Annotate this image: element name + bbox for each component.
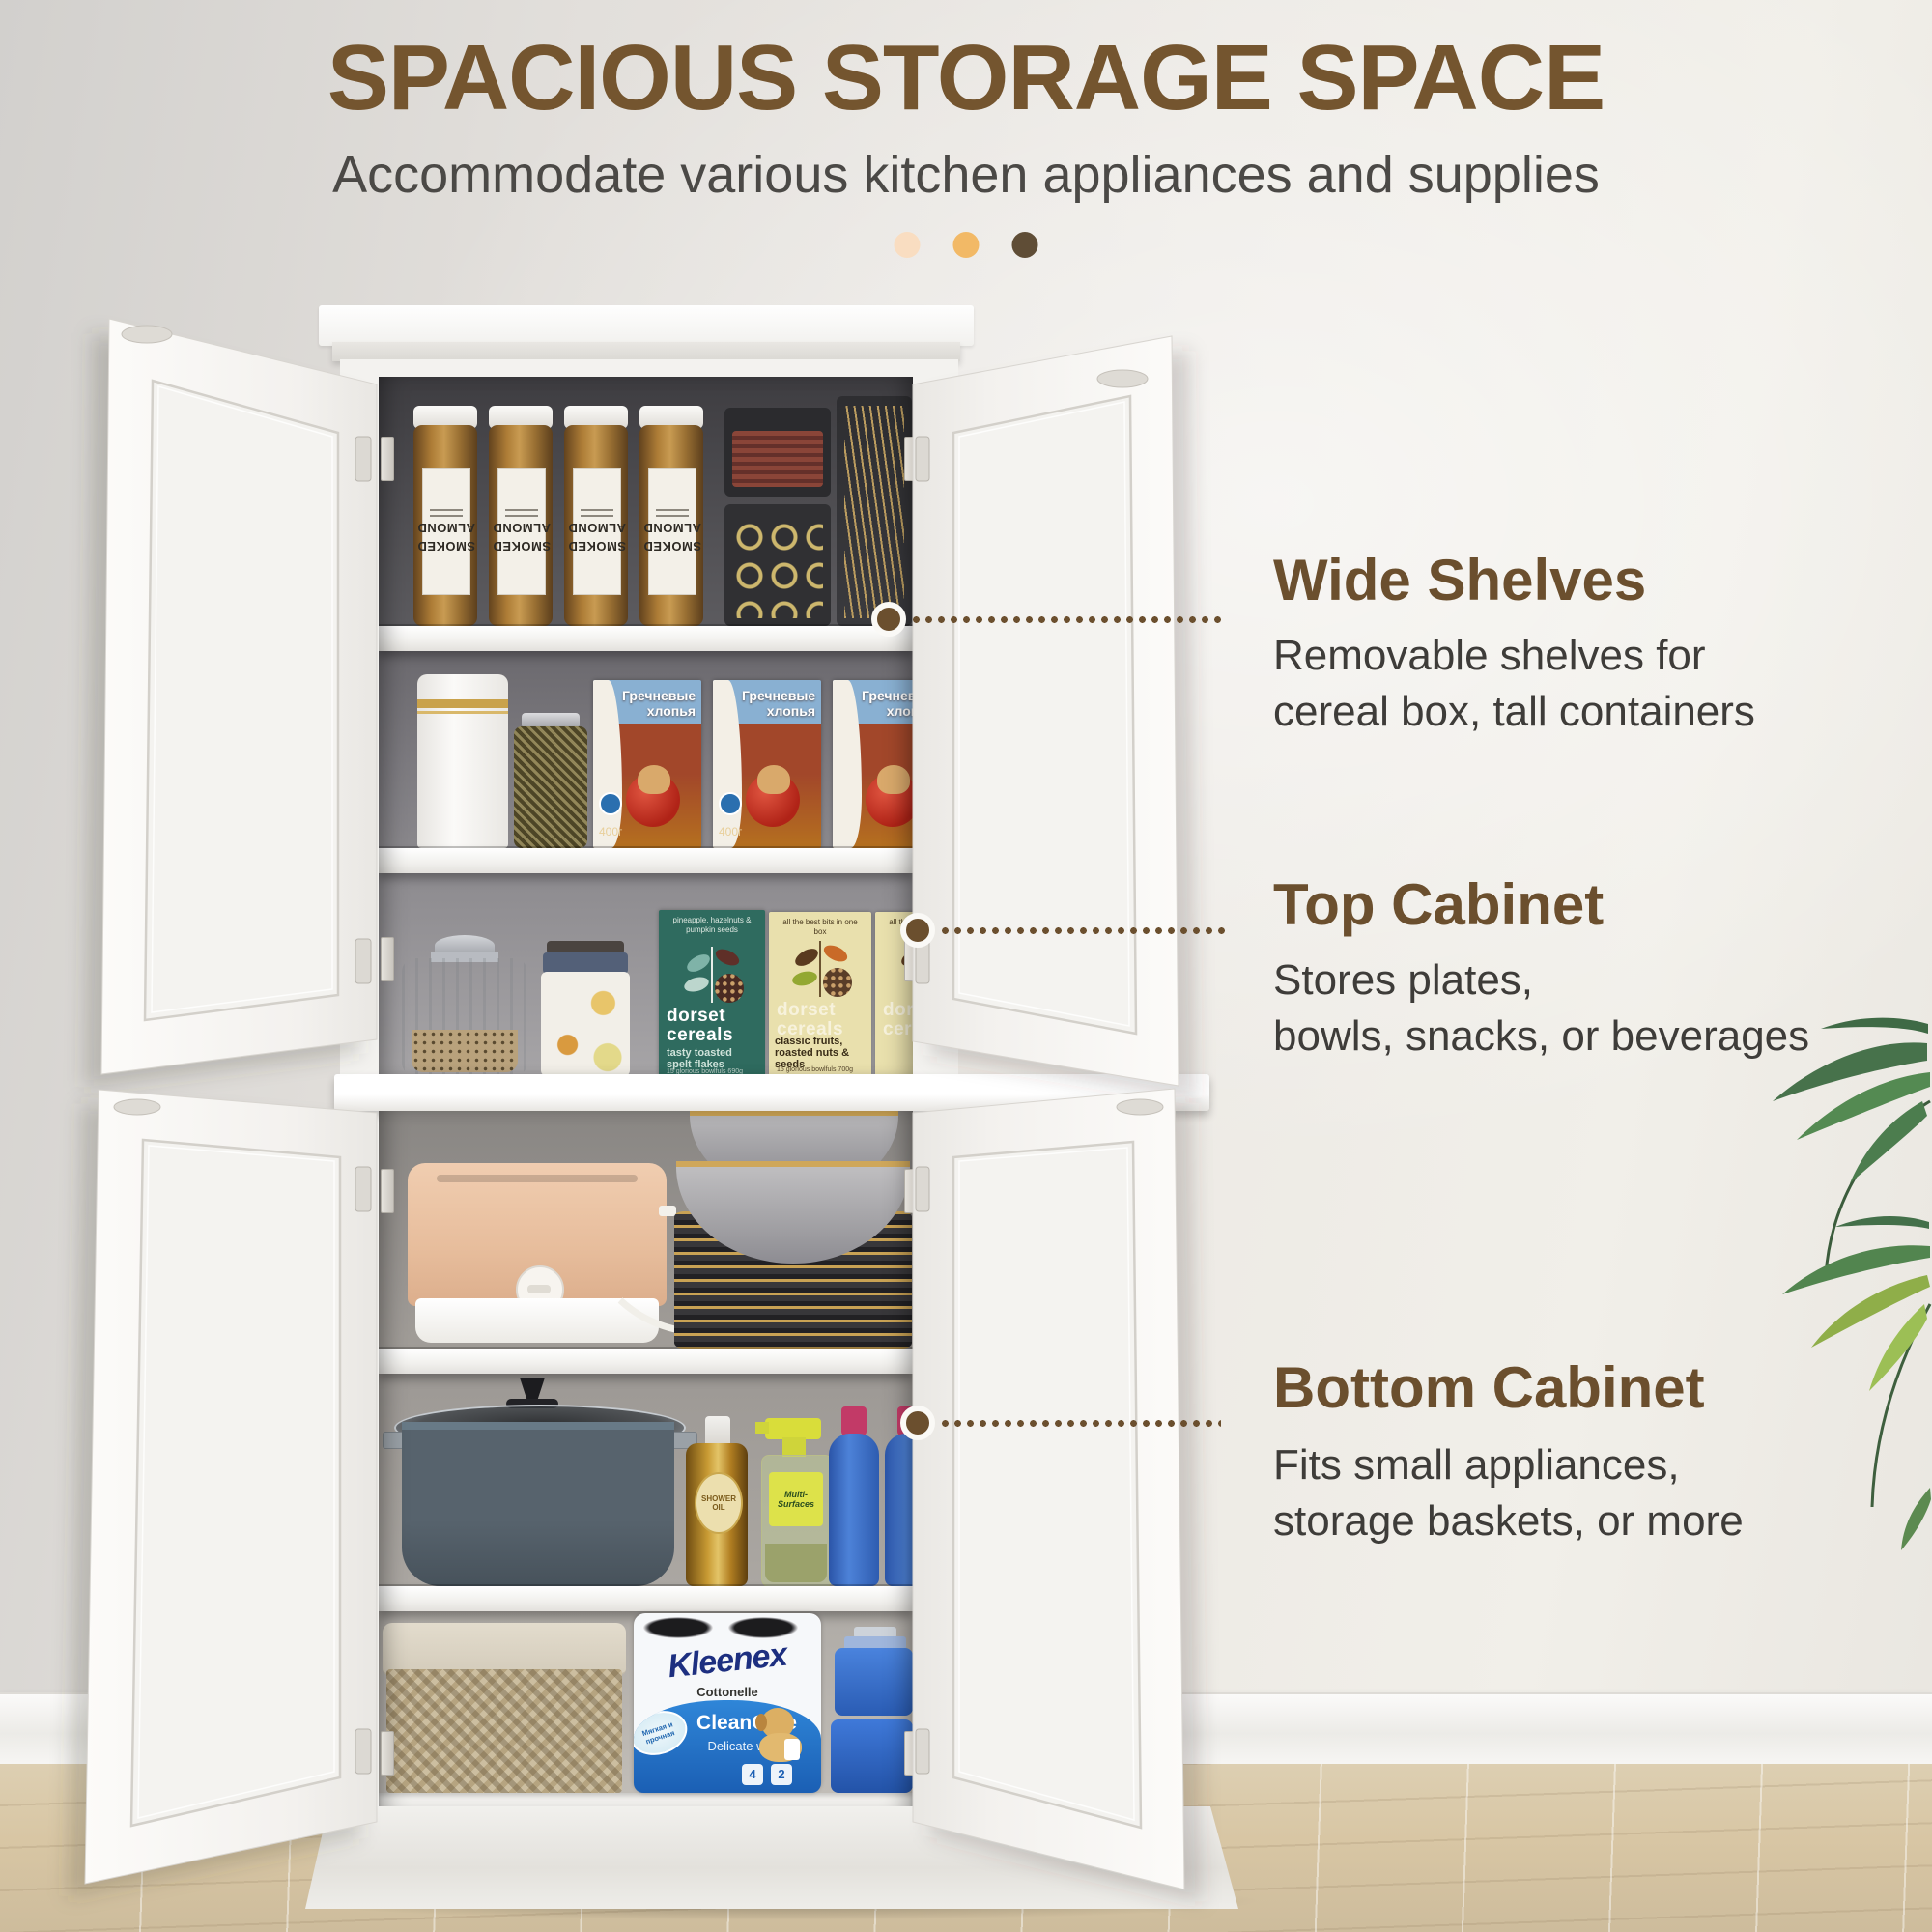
door-catch-plate xyxy=(122,326,172,343)
pagination-dot-3 xyxy=(1012,232,1038,258)
leader-dotted-line xyxy=(941,1419,1221,1428)
door-hinge-plate xyxy=(916,1167,929,1211)
page-subtitle: Accommodate various kitchen appliances a… xyxy=(0,145,1932,205)
callout-title: Wide Shelves xyxy=(1273,547,1646,613)
door-bottom-right[interactable] xyxy=(913,1089,1184,1889)
palm-leaf xyxy=(1901,1488,1931,1550)
door-hinge-plate xyxy=(355,1167,371,1211)
callout-text-line: cereal box, tall containers xyxy=(1273,688,1755,736)
door-top-left[interactable] xyxy=(101,319,377,1074)
palm-leaf xyxy=(1850,1101,1927,1183)
palm-leaf xyxy=(1821,1018,1928,1034)
page-title: SPACIOUS STORAGE SPACE xyxy=(0,25,1932,131)
pagination-dot-1 xyxy=(895,232,921,258)
palm-leaf xyxy=(1835,1216,1929,1229)
pagination-dot-2 xyxy=(953,232,980,258)
door-top-right[interactable] xyxy=(913,336,1179,1086)
door-hinge-plate xyxy=(916,1729,929,1774)
callout-text-line: Stores plates, xyxy=(1273,956,1533,1005)
door-panel xyxy=(953,396,1136,1034)
callout-text-line: Removable shelves for xyxy=(1273,632,1706,680)
cabinet-doors xyxy=(0,0,1932,1932)
door-panel xyxy=(145,381,338,1020)
door-catch-plate xyxy=(114,1099,160,1115)
door-hinge-plate xyxy=(355,939,371,983)
door-catch-plate xyxy=(1117,1099,1163,1115)
door-hinge-plate xyxy=(355,1729,371,1774)
door-bottom-left[interactable] xyxy=(85,1090,377,1884)
door-hinge-plate xyxy=(355,437,371,481)
door-catch-plate xyxy=(1097,370,1148,387)
callout-text-line: storage baskets, or more xyxy=(1273,1497,1744,1546)
leader-dotted-line xyxy=(941,926,1231,935)
leader-anchor-dot xyxy=(900,913,935,948)
callout-title: Bottom Cabinet xyxy=(1273,1354,1705,1421)
callout-text-line: bowls, snacks, or beverages xyxy=(1273,1012,1809,1061)
door-hinge-plate xyxy=(916,437,929,481)
product-infographic: SPACIOUS STORAGE SPACE Accommodate vario… xyxy=(0,0,1932,1932)
door-panel xyxy=(953,1142,1141,1828)
door-panel xyxy=(131,1140,340,1826)
pagination-dots xyxy=(895,232,1038,258)
callout-text-line: Fits small appliances, xyxy=(1273,1441,1680,1490)
leader-dotted-line xyxy=(912,615,1221,624)
leader-anchor-dot xyxy=(871,602,906,637)
callout-title: Top Cabinet xyxy=(1273,871,1604,938)
leader-anchor-dot xyxy=(900,1406,935,1440)
